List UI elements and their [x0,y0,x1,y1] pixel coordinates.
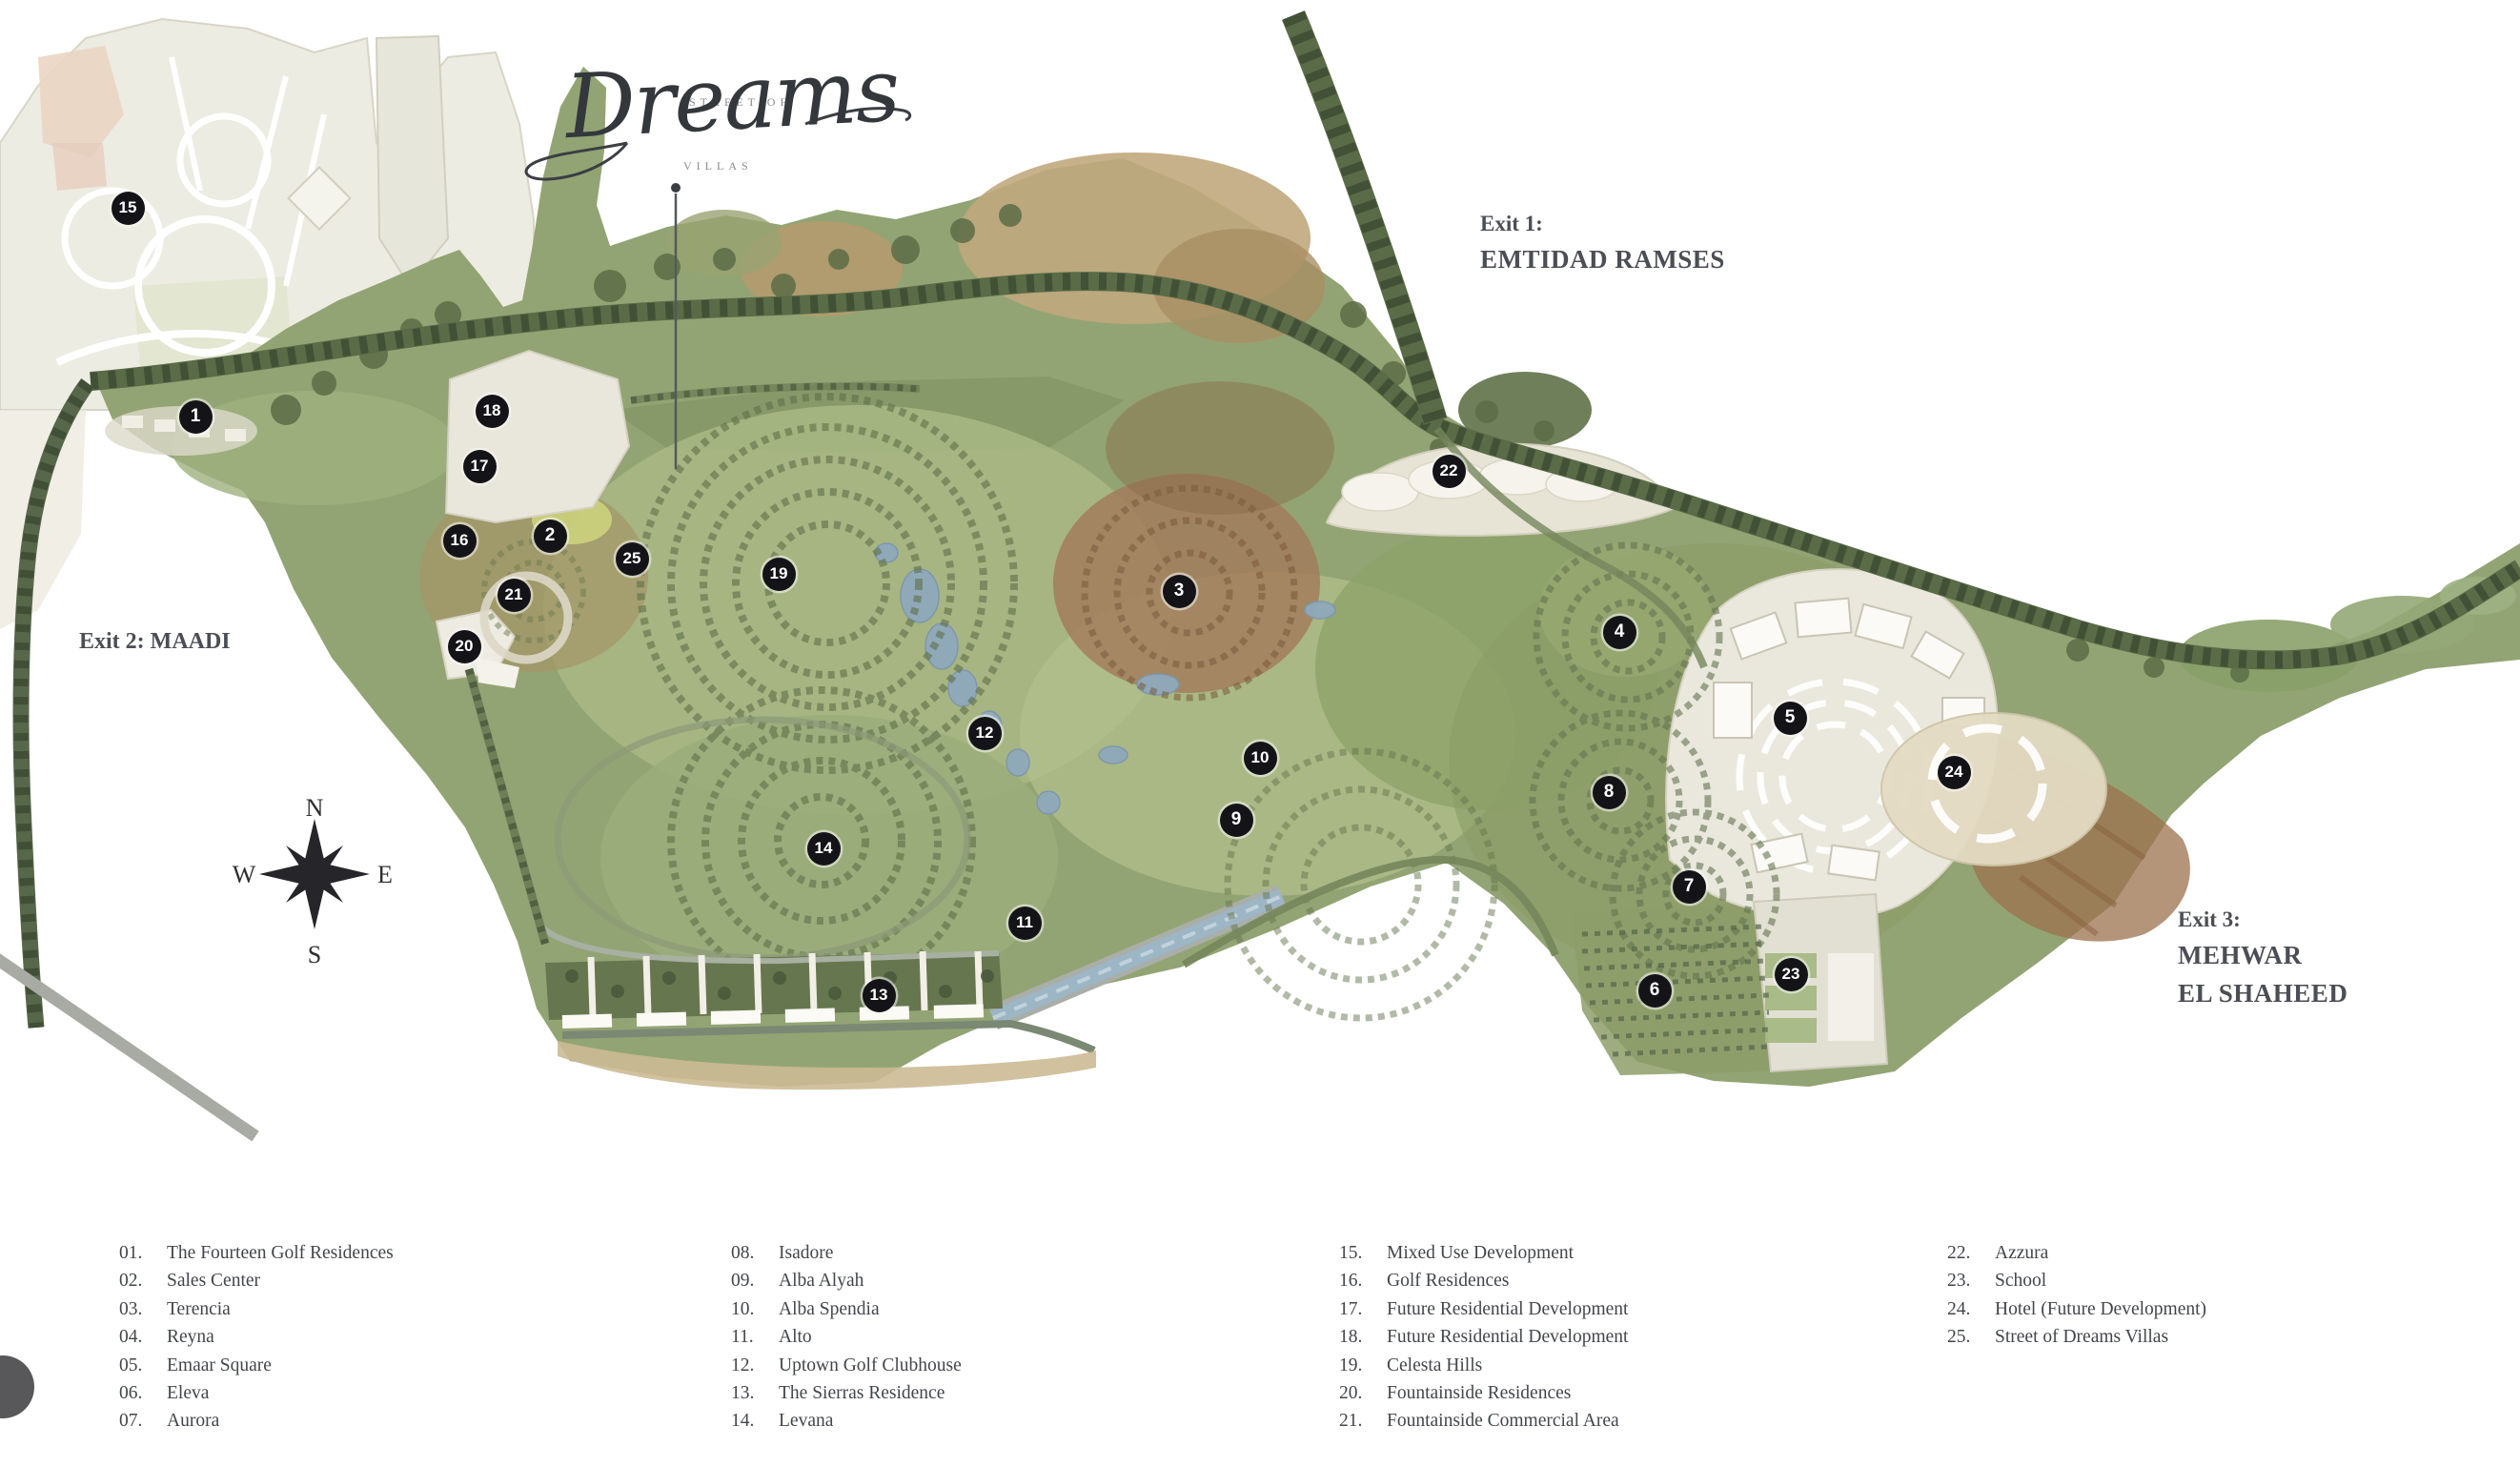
map-marker-7: 7 [1673,870,1706,904]
map-marker-3: 3 [1163,575,1196,608]
legend-item-label: Fountainside Commercial Area [1387,1407,1619,1435]
map-marker-17: 17 [463,450,497,483]
legend-item: 05.Emaar Square [119,1352,394,1379]
map-marker-19: 19 [762,558,796,591]
legend-item: 07.Aurora [119,1407,394,1435]
legend-item-label: Emaar Square [167,1352,272,1379]
legend-item: 21.Fountainside Commercial Area [1339,1407,1628,1435]
legend-item-number: 13. [731,1379,779,1407]
legend-item-number: 21. [1339,1407,1387,1435]
compass-e: E [377,861,393,888]
legend-item-number: 22. [1947,1239,1995,1267]
exit-3-road-line2: EL SHAHEED [2178,979,2347,1009]
legend-item-label: Alba Alyah [779,1267,864,1294]
legend-item: 10.Alba Spendia [731,1295,962,1323]
legend-item-number: 07. [119,1407,167,1435]
map-marker-25: 25 [616,542,649,576]
map-marker-5: 5 [1774,702,1807,735]
legend-item-label: Celesta Hills [1387,1352,1482,1379]
map-marker-18: 18 [476,395,509,428]
legend-item-number: 01. [119,1239,167,1267]
legend-item-label: Aurora [167,1407,219,1435]
map-marker-13: 13 [863,979,896,1012]
map-marker-23: 23 [1775,958,1808,991]
legend-item-label: Alto [779,1323,812,1351]
legend-item-label: Golf Residences [1387,1267,1509,1294]
legend-item-number: 10. [731,1295,779,1323]
map-marker-1: 1 [179,400,213,434]
brand-logo: STREET OF Dreams VILLAS [519,34,929,196]
legend-item-number: 05. [119,1352,167,1379]
exit-3-label: Exit 3: MEHWAR EL SHAHEED [2178,907,2347,1009]
legend-item: 23.School [1947,1267,2206,1294]
legend-item-label: Levana [779,1407,833,1435]
legend-item: 16.Golf Residences [1339,1267,1628,1294]
legend-item-label: Reyna [167,1323,214,1351]
legend-item: 18.Future Residential Development [1339,1323,1628,1351]
map-marker-16: 16 [443,524,477,558]
legend-item-number: 12. [731,1352,779,1379]
exit-1-label: Exit 1: EMTIDAD RAMSES [1480,212,1725,275]
legend-item-label: School [1995,1267,2046,1294]
legend-item-number: 02. [119,1267,167,1294]
legend-item-label: Sales Center [167,1267,260,1294]
legend-item: 08.Isadore [731,1239,962,1267]
exit-1-road: EMTIDAD RAMSES [1480,245,1725,275]
legend-item: 25.Street of Dreams Villas [1947,1323,2206,1351]
legend-item-number: 04. [119,1323,167,1351]
logo-wordmark: Dreams [562,39,901,158]
legend-item: 09.Alba Alyah [731,1267,962,1294]
exit-1-prefix: Exit 1: [1480,212,1725,236]
legend-item-number: 18. [1339,1323,1387,1351]
legend-item-number: 17. [1339,1295,1387,1323]
legend-item-label: Isadore [779,1239,833,1267]
exit-3-prefix: Exit 3: [2178,907,2347,932]
map-marker-9: 9 [1220,804,1253,837]
legend-item-number: 19. [1339,1352,1387,1379]
legend-item-label: Fountainside Residences [1387,1379,1571,1407]
compass-w: W [233,861,256,888]
legend-item: 02.Sales Center [119,1267,394,1294]
legend-item-label: Uptown Golf Clubhouse [779,1352,962,1379]
legend-item-number: 11. [731,1323,779,1351]
exit-2-label: Exit 2: MAADI [79,629,231,655]
map-marker-6: 6 [1638,974,1672,1008]
legend-item-number: 23. [1947,1267,1995,1294]
legend-item-number: 03. [119,1295,167,1323]
legend-item: 24.Hotel (Future Development) [1947,1295,2206,1323]
legend-item-label: Azzura [1995,1239,2048,1267]
logo-bottom-text: VILLAS [683,159,753,173]
legend-item: 06.Eleva [119,1379,394,1407]
legend-item-number: 20. [1339,1379,1387,1407]
legend-item-number: 25. [1947,1323,1995,1351]
map-marker-8: 8 [1593,776,1626,809]
map-marker-12: 12 [968,717,1002,750]
compass-rose: N E S W [233,794,393,968]
map-marker-15: 15 [112,192,145,225]
legend-column-1: 01.The Fourteen Golf Residences02.Sales … [119,1239,394,1436]
legend-item-number: 15. [1339,1239,1387,1267]
legend-item-number: 14. [731,1407,779,1435]
map-marker-10: 10 [1244,742,1277,775]
legend-column-4: 22.Azzura23.School24.Hotel (Future Devel… [1947,1239,2206,1352]
map-marker-20: 20 [448,630,481,663]
legend-item: 19.Celesta Hills [1339,1352,1628,1379]
map-marker-21: 21 [498,579,531,612]
legend-item-label: Future Residential Development [1387,1323,1628,1351]
legend-item: 14.Levana [731,1407,962,1435]
legend-item-label: Street of Dreams Villas [1995,1323,2168,1351]
legend-item-label: The Fourteen Golf Residences [167,1239,394,1267]
map-marker-2: 2 [534,520,567,553]
legend-item: 15.Mixed Use Development [1339,1239,1628,1267]
legend-item-label: Hotel (Future Development) [1995,1295,2206,1323]
legend-item-number: 09. [731,1267,779,1294]
legend-item: 12.Uptown Golf Clubhouse [731,1352,962,1379]
legend-item: 11.Alto [731,1323,962,1351]
legend-item: 17.Future Residential Development [1339,1295,1628,1323]
map-marker-14: 14 [807,832,841,866]
map-marker-11: 11 [1008,907,1042,940]
legend-column-3: 15.Mixed Use Development16.Golf Residenc… [1339,1239,1628,1436]
legend-item: 03.Terencia [119,1295,394,1323]
compass-n: N [306,794,324,822]
legend-item-number: 24. [1947,1295,1995,1323]
legend-item: 01.The Fourteen Golf Residences [119,1239,394,1267]
legend-item-label: The Sierras Residence [779,1379,945,1407]
legend-item-label: Future Residential Development [1387,1295,1628,1323]
legend-item-number: 06. [119,1379,167,1407]
map-marker-22: 22 [1433,455,1466,488]
legend-item: 04.Reyna [119,1323,394,1351]
legend-item-number: 16. [1339,1267,1387,1294]
legend-item-label: Mixed Use Development [1387,1239,1574,1267]
legend-column-2: 08.Isadore09.Alba Alyah10.Alba Spendia11… [731,1239,962,1436]
legend-item-number: 08. [731,1239,779,1267]
legend-item: 13.The Sierras Residence [731,1379,962,1407]
compass-s: S [308,941,321,968]
legend-item: 22.Azzura [1947,1239,2206,1267]
legend-item-label: Alba Spendia [779,1295,880,1323]
legend-item-label: Terencia [167,1295,231,1323]
legend-item-label: Eleva [167,1379,209,1407]
exit-3-road-line1: MEHWAR [2178,941,2347,970]
map-marker-4: 4 [1603,616,1636,649]
map-marker-24: 24 [1938,756,1971,789]
legend-item: 20.Fountainside Residences [1339,1379,1628,1407]
masterplan-page: N E S W STREET OF Dreams VILLAS Exit 1: … [0,0,2520,1467]
